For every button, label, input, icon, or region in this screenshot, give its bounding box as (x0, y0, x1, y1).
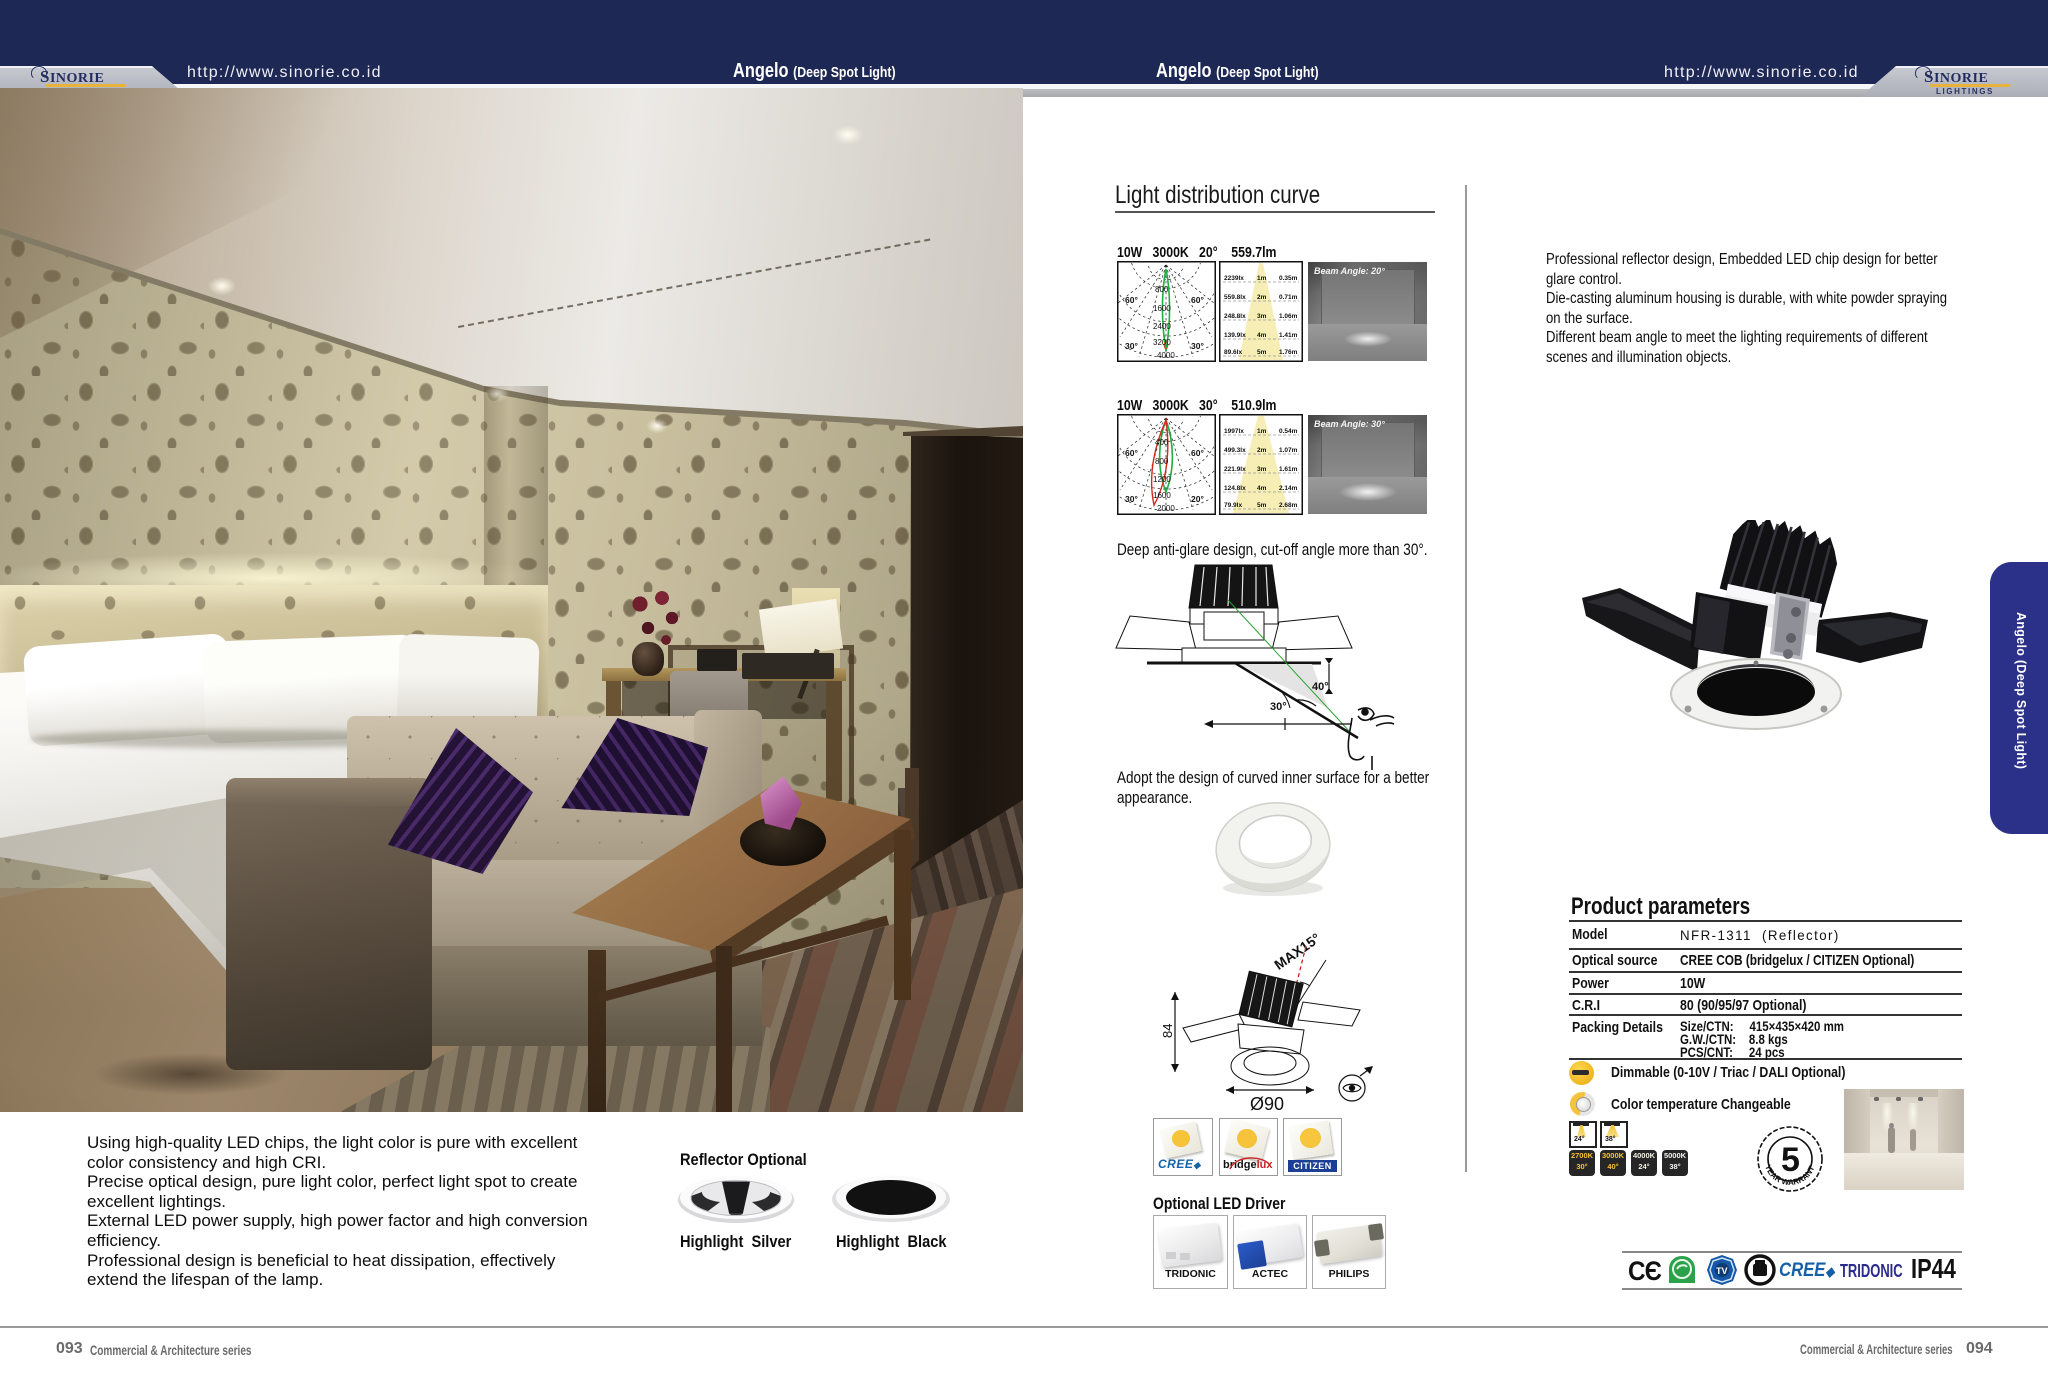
svg-text:800: 800 (1155, 285, 1169, 294)
svg-text:30°: 30° (1125, 494, 1138, 504)
svg-text:MAX15°: MAX15° (1271, 930, 1323, 973)
svg-text:79.9lx: 79.9lx (1224, 502, 1242, 509)
svg-text:0.54m: 0.54m (1279, 428, 1298, 435)
svg-text:248.8lx: 248.8lx (1224, 313, 1246, 320)
svg-text:20°: 20° (1191, 494, 1204, 504)
svg-text:1.07m: 1.07m (1279, 447, 1298, 454)
svg-text:400: 400 (1155, 438, 1169, 447)
svg-text:84: 84 (1160, 1024, 1175, 1038)
svg-text:559.8lx: 559.8lx (1224, 294, 1246, 301)
svg-text:0.71m: 0.71m (1279, 294, 1298, 301)
svg-text:2239lx: 2239lx (1224, 275, 1244, 282)
svg-text:221.9lx: 221.9lx (1224, 466, 1246, 473)
svg-text:4000: 4000 (1157, 351, 1175, 360)
svg-text:499.3lx: 499.3lx (1224, 447, 1246, 454)
svg-text:1m: 1m (1257, 428, 1267, 435)
svg-text:30°: 30° (1125, 341, 1138, 351)
svg-text:60°: 60° (1125, 295, 1138, 305)
svg-text:1.76m: 1.76m (1279, 349, 1298, 356)
svg-text:60°: 60° (1191, 295, 1204, 305)
svg-text:TV: TV (1716, 1266, 1728, 1276)
svg-text:2m: 2m (1257, 447, 1267, 454)
svg-text:0.35m: 0.35m (1279, 275, 1298, 282)
svg-text:1600: 1600 (1153, 491, 1171, 500)
svg-text:1600: 1600 (1153, 304, 1171, 313)
svg-text:2.68m: 2.68m (1279, 502, 1298, 509)
svg-text:40°: 40° (1312, 681, 1329, 693)
svg-text:5: 5 (1781, 1141, 1800, 1179)
svg-text:1997lx: 1997lx (1224, 428, 1244, 435)
svg-text:Ø90: Ø90 (1250, 1094, 1284, 1114)
svg-text:124.8lx: 124.8lx (1224, 485, 1246, 492)
svg-text:3m: 3m (1257, 466, 1267, 473)
svg-text:2.14m: 2.14m (1279, 485, 1298, 492)
svg-text:30°: 30° (1270, 701, 1287, 713)
svg-text:4m: 4m (1257, 485, 1267, 492)
svg-text:1m: 1m (1257, 275, 1267, 282)
svg-text:800: 800 (1155, 457, 1169, 466)
svg-text:60°: 60° (1191, 448, 1204, 458)
svg-text:1.41m: 1.41m (1279, 332, 1298, 339)
svg-text:89.6lx: 89.6lx (1224, 349, 1242, 356)
svg-text:5m: 5m (1257, 502, 1267, 509)
svg-text:60°: 60° (1125, 448, 1138, 458)
svg-text:1.06m: 1.06m (1279, 313, 1298, 320)
svg-text:30°: 30° (1191, 341, 1204, 351)
svg-text:2m: 2m (1257, 294, 1267, 301)
svg-text:1.61m: 1.61m (1279, 466, 1298, 473)
svg-text:3m: 3m (1257, 313, 1267, 320)
svg-text:2400: 2400 (1153, 322, 1171, 331)
svg-text:5m: 5m (1257, 349, 1267, 356)
svg-text:139.9lx: 139.9lx (1224, 332, 1246, 339)
svg-text:2000: 2000 (1157, 504, 1175, 513)
svg-text:1200: 1200 (1153, 475, 1171, 484)
svg-text:3200: 3200 (1153, 338, 1171, 347)
svg-text:4m: 4m (1257, 332, 1267, 339)
